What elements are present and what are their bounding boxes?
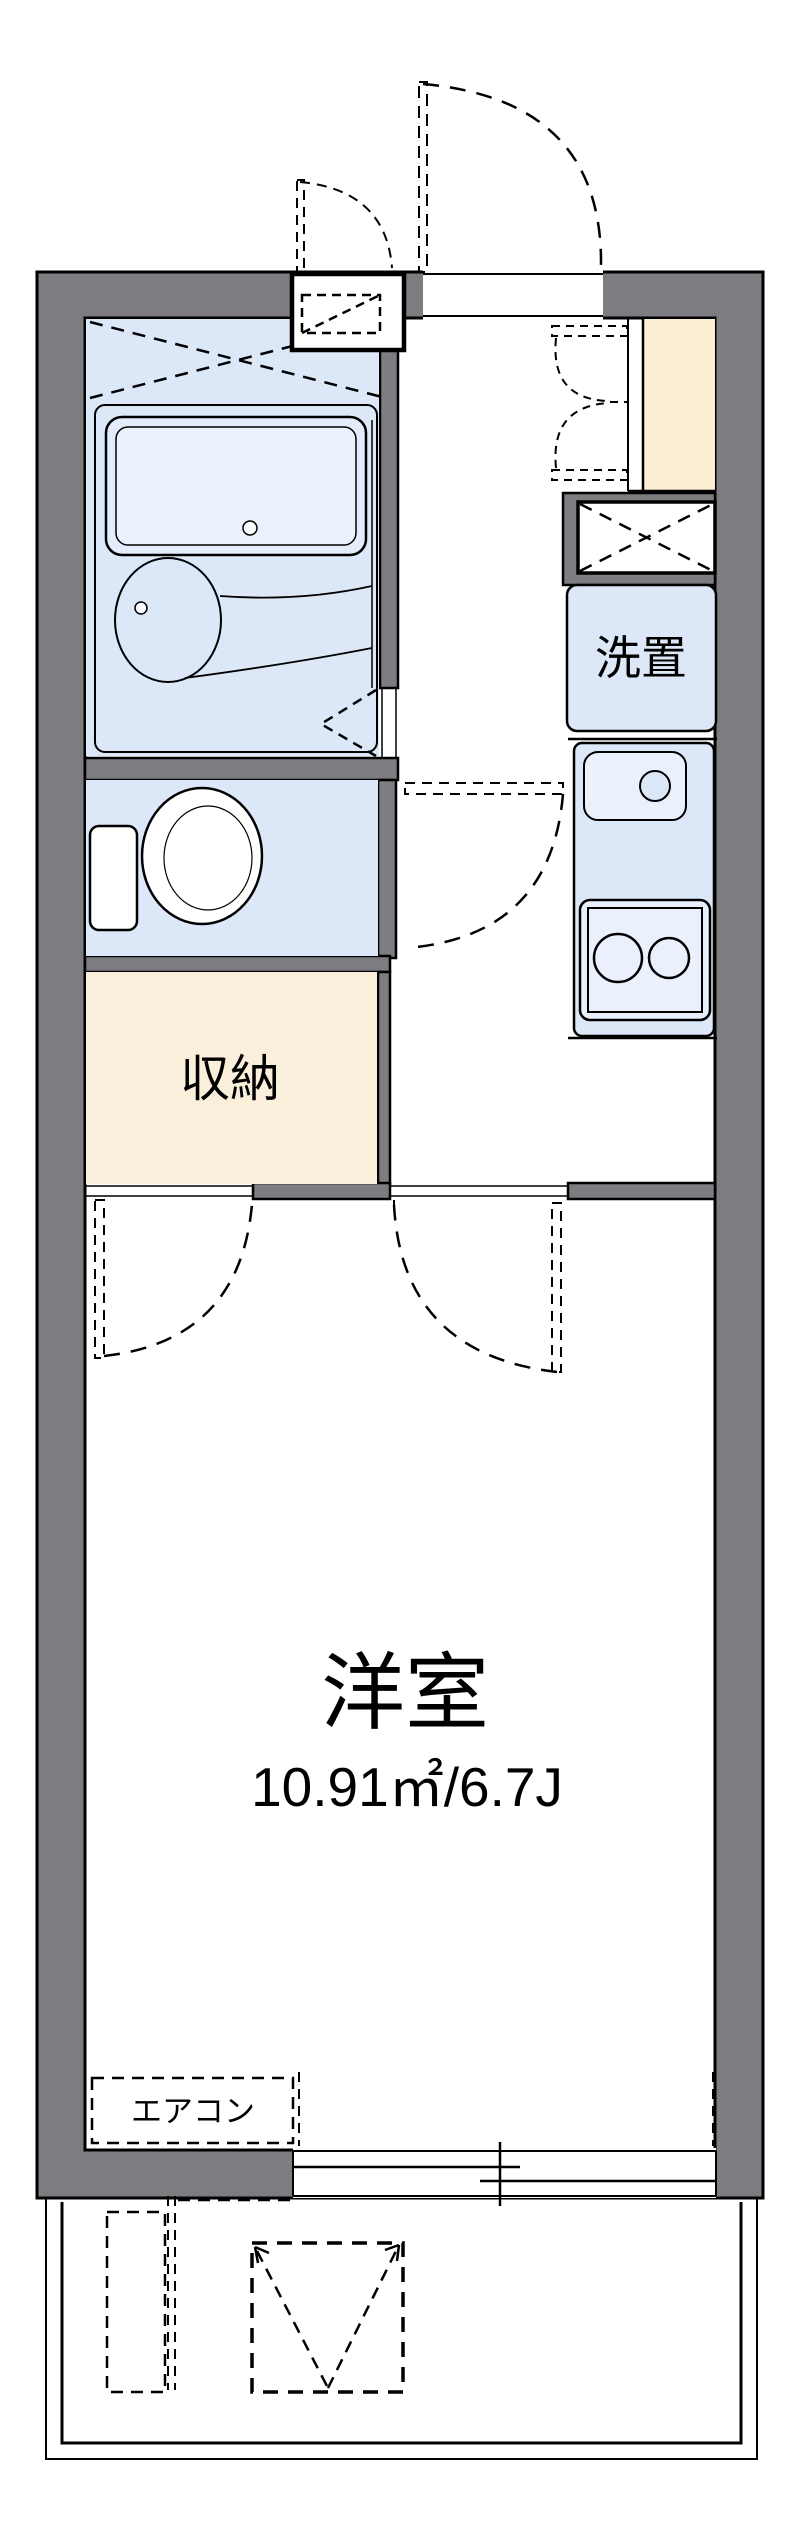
south-window bbox=[293, 2142, 716, 2206]
wall-storage-hall bbox=[378, 972, 390, 1185]
wall-bath-toilet bbox=[85, 758, 398, 780]
floor-plan-canvas: 洗置 bbox=[0, 0, 800, 2539]
laundry-label: 洗置 bbox=[595, 632, 687, 684]
wall-toilet-hall bbox=[378, 780, 396, 958]
bathtub-inner bbox=[116, 427, 356, 545]
wall-storage-room bbox=[253, 1183, 390, 1199]
meter-box-niche bbox=[292, 274, 404, 350]
wall-toilet-storage bbox=[85, 956, 390, 972]
balcony-outdoor-unit-area bbox=[107, 2212, 165, 2392]
balcony bbox=[46, 2196, 757, 2459]
entrance-floor bbox=[644, 319, 715, 491]
entrance-doorway bbox=[423, 270, 603, 320]
entrance-door-swing bbox=[419, 82, 601, 272]
wall-bath-hall bbox=[380, 318, 398, 688]
main-room-label: 洋室 bbox=[321, 1646, 489, 1740]
toilet-bowl bbox=[142, 788, 262, 924]
ac-label: エアコン bbox=[131, 2094, 255, 2129]
storage-label: 収納 bbox=[180, 1051, 280, 1107]
main-room-area-label: 10.91㎡/6.7J bbox=[251, 1756, 563, 1818]
meter-box-door-swing bbox=[297, 180, 392, 272]
wall-kitchen-room bbox=[568, 1183, 715, 1199]
floor-plan-image: 洗置 bbox=[0, 0, 800, 2539]
toilet-tank bbox=[90, 826, 137, 930]
bath-sink bbox=[115, 558, 221, 682]
bath-sink-drain bbox=[135, 602, 147, 614]
kitchen-stove bbox=[580, 900, 710, 1020]
balcony-escape-hatch bbox=[252, 2243, 403, 2392]
window-opening bbox=[293, 2148, 716, 2198]
bathtub-drain bbox=[243, 521, 257, 535]
kitchen-faucet bbox=[640, 771, 670, 801]
